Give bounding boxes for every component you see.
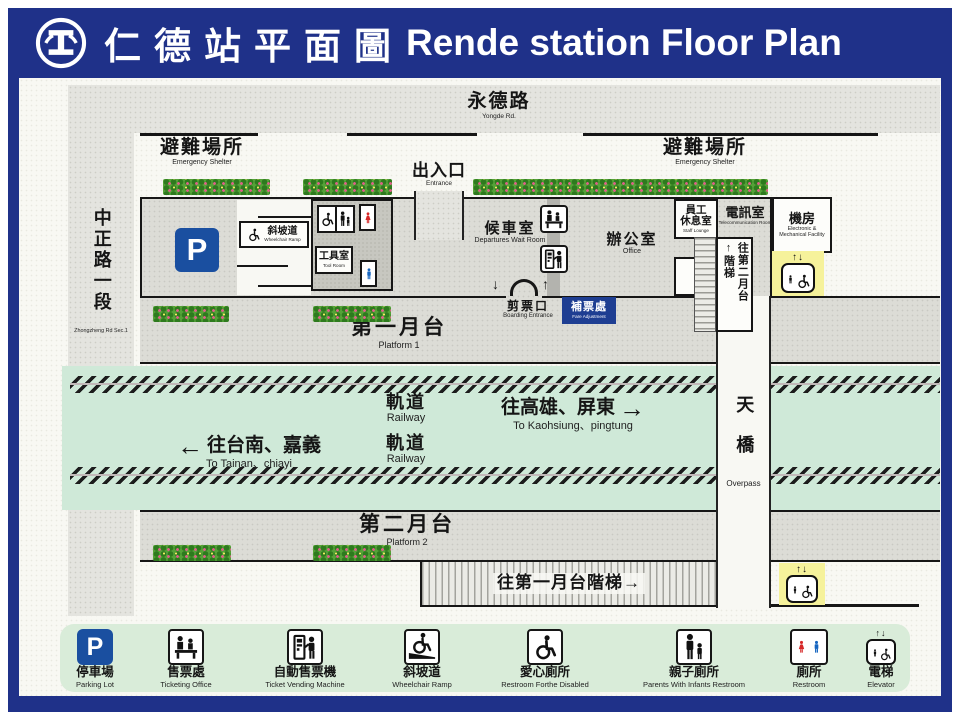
page-frame-border	[8, 8, 952, 712]
rende-station-floor-plan: 仁德站平面圖 Rende station Floor Plan P 斜坡道 Wh…	[0, 0, 960, 720]
